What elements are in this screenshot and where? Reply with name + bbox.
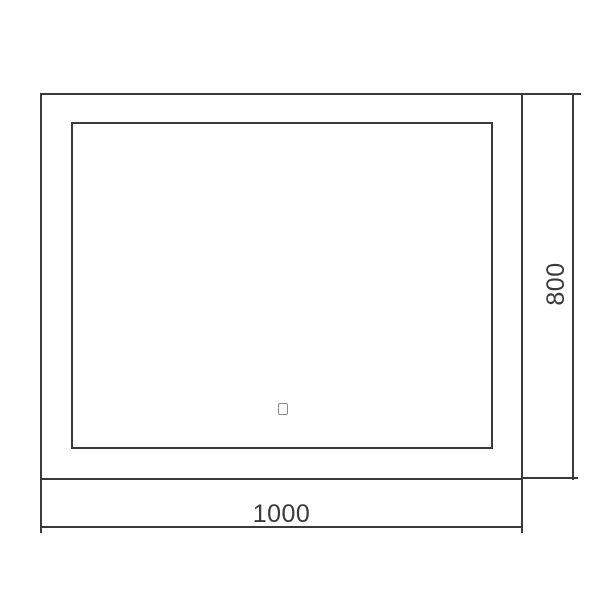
- mirror-dimension-drawing: 800 1000: [0, 0, 600, 600]
- touch-sensor-icon: [278, 403, 288, 415]
- height-dimension-label: 800: [543, 244, 569, 324]
- mirror-inner-frame: [71, 122, 493, 449]
- width-dimension-label: 1000: [40, 501, 523, 527]
- height-dimension-line: [572, 93, 574, 480]
- extension-line-bottom-right: [523, 477, 578, 479]
